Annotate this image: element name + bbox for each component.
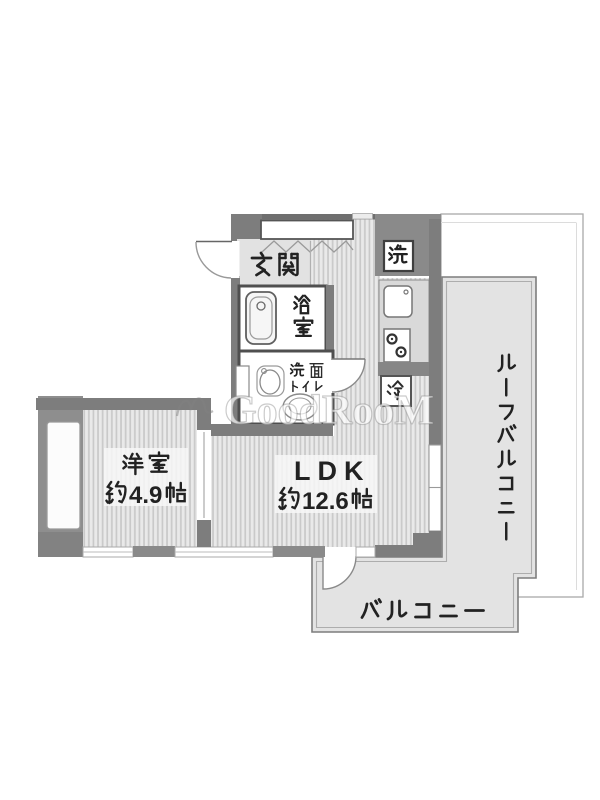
svg-text:12.6: 12.6 (302, 488, 349, 515)
svg-text:4.9: 4.9 (129, 482, 162, 509)
svg-text:LDK: LDK (294, 456, 371, 486)
svg-text:GoodRooM: GoodRooM (224, 388, 434, 434)
